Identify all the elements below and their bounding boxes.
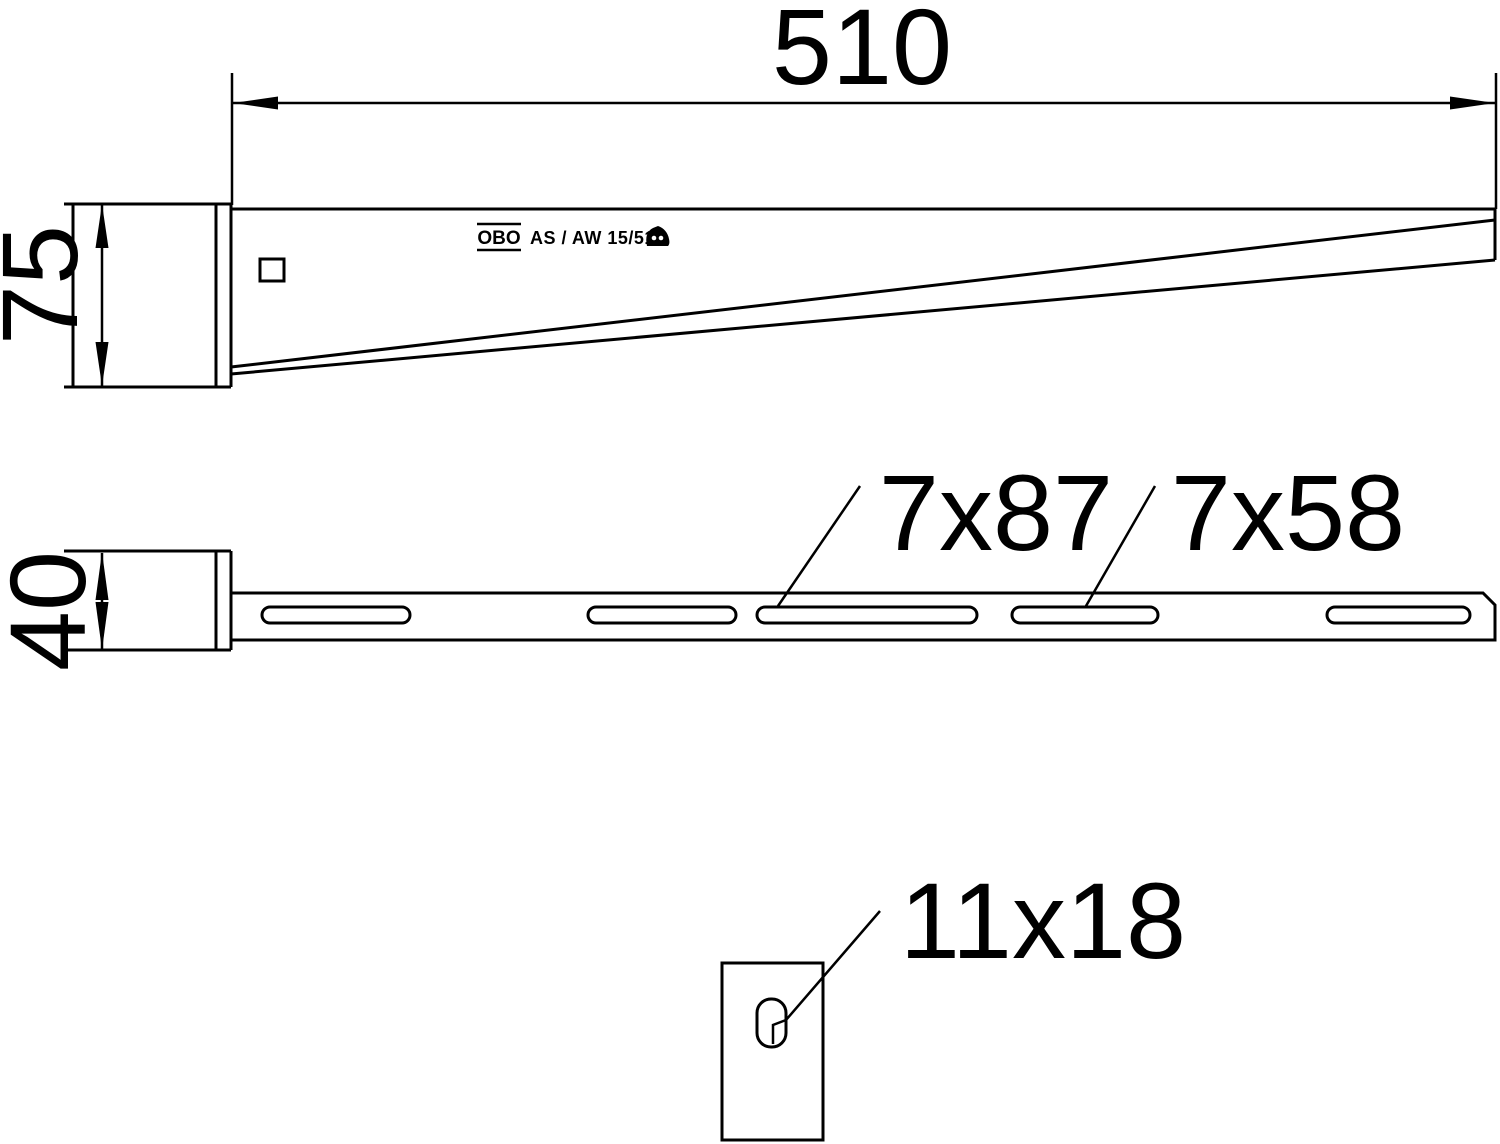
leader-line-11x18 <box>773 911 880 1044</box>
plate-detail-view: 11x18 <box>722 860 1186 1140</box>
brand-label: OBO <box>477 228 520 249</box>
leader-line-7x87 <box>778 486 860 606</box>
dim-length-label: 510 <box>772 0 952 107</box>
dim-height-label: 75 <box>0 225 100 345</box>
drawing-canvas: 510 75 <box>0 0 1500 1144</box>
slot-4 <box>1012 607 1158 623</box>
arm-flange-fold-line <box>231 220 1495 367</box>
mounting-square-hole <box>260 259 284 281</box>
dim-width-label: 40 <box>0 551 108 671</box>
slot-label-7x58: 7x58 <box>1171 452 1405 573</box>
slot-label-7x87: 7x87 <box>879 452 1113 573</box>
arrow-left-icon <box>233 97 278 110</box>
cert-mark-dot <box>659 236 664 241</box>
bracket-arm-side <box>231 209 1495 374</box>
cert-mark-dot <box>652 236 657 241</box>
slot-5 <box>1327 607 1470 623</box>
wall-plate-front <box>722 963 823 1140</box>
technical-drawing: 510 75 <box>0 0 1500 1144</box>
arm-bottom-edge <box>231 260 1495 374</box>
bracket-arm-top <box>231 593 1495 640</box>
product-marking: OBO AS / AW 15/51 <box>477 224 669 250</box>
top-view: 40 7x87 7x58 <box>0 452 1495 671</box>
slot-3-long <box>757 607 977 623</box>
arrow-right-icon <box>1450 97 1495 110</box>
side-view: 510 75 <box>0 0 1496 387</box>
hole-label-11x18: 11x18 <box>900 860 1186 981</box>
arrow-down-icon <box>96 342 109 386</box>
model-label: AS / AW 15/51 <box>530 228 655 248</box>
slot-1 <box>262 607 410 623</box>
obo-logo: OBO <box>477 224 521 250</box>
slot-2 <box>588 607 736 623</box>
